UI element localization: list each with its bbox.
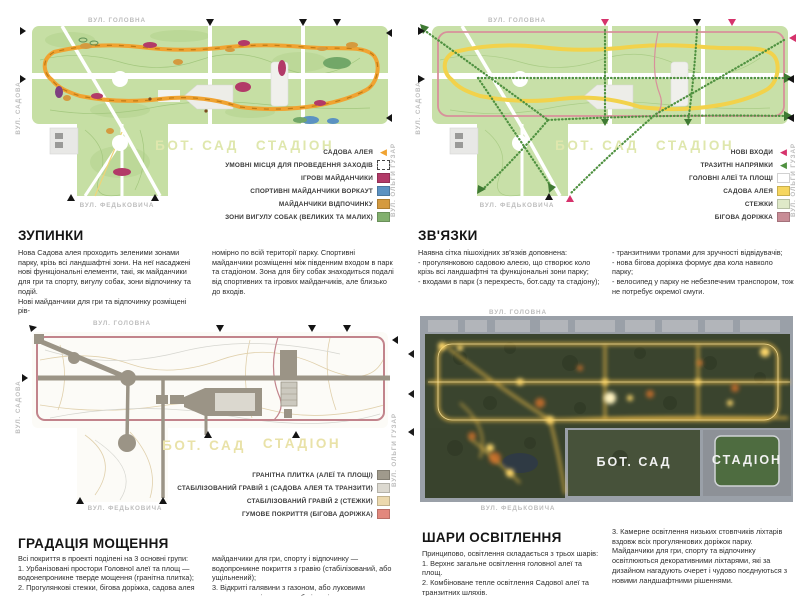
- lighting-title: ШАРИ ОСВІТЛЕННЯ: [422, 530, 562, 545]
- legend-item: ЗОНИ ВИГУЛУ СОБАК (ВЕЛИКИХ ТА МАЛИХ): [225, 212, 390, 222]
- street-label-fedkovycha: ВУЛ. ФЕДЬКОВИЧА: [80, 202, 155, 209]
- gravel1-swatch: [377, 483, 390, 493]
- section-stops: ВУЛ. ГОЛОВНА ВУЛ. САДОВА ВУЛ. ФЕДЬКОВИЧА…: [0, 0, 400, 298]
- paths-swatch: [777, 199, 790, 209]
- links-title: ЗВ'ЯЗКИ: [418, 228, 478, 243]
- bot-sad-label: БОТ. САД: [597, 455, 672, 469]
- granite-tile-swatch: [377, 470, 390, 480]
- paving-legend: ГРАНІТНА ПЛИТКА (АЛЕЇ ТА ПЛОЩІ) СТАБІЛІЗ…: [177, 470, 390, 519]
- lighting-col1: Принципово, освітлення складається з трь…: [422, 549, 602, 596]
- legend-item: ГОЛОВНІ АЛЕЇ ТА ПЛОЩІ: [689, 173, 790, 183]
- main-alleys-swatch: [777, 173, 790, 183]
- garden-alley-arrow-icon: ◀: [377, 147, 390, 157]
- lighting-map: ВУЛ. ГОЛОВНА ВУЛ. ФЕДЬКОВИЧА БОТ. САД СТ…: [400, 308, 800, 518]
- links-text: Наявна сітка пішохідних зв'язків доповне…: [418, 248, 794, 297]
- stops-title: ЗУПИНКИ: [18, 228, 84, 243]
- paving-title: ГРАДАЦІЯ МОЩЕННЯ: [18, 536, 169, 551]
- paving-col2: майданчики для гри, спорту і відпочинку …: [212, 554, 394, 596]
- legend-item: ГУМОВЕ ПОКРИТТЯ (БІГОВА ДОРІЖКА): [242, 509, 390, 519]
- street-label-sadova: ВУЛ. САДОВА: [15, 380, 22, 433]
- section-paving: ВУЛ. ГОЛОВНА ВУЛ. САДОВА ВУЛ. ФЕДЬКОВИЧА…: [0, 298, 400, 596]
- street-label-fedkovycha: ВУЛ. ФЕДЬКОВИЧА: [480, 202, 555, 209]
- legend-item: ІГРОВІ МАЙДАНЧИКИ: [301, 173, 390, 183]
- play-areas-swatch: [377, 173, 390, 183]
- legend-item: СТАБІЛІЗОВАНИЙ ГРАВІЙ 2 (СТЕЖКИ): [247, 496, 390, 506]
- street-label-huzar: ВУЛ. ОЛЬГИ ГУЗАР: [790, 143, 797, 217]
- section-links: ВУЛ. ГОЛОВНА ВУЛ. САДОВА ВУЛ. ФЕДЬКОВИЧА…: [400, 0, 800, 298]
- rest-areas-swatch: [377, 199, 390, 209]
- bot-sad-label: БОТ. САД: [162, 438, 246, 453]
- paving-text: Всі покриття в проекті поділені на 3 осн…: [18, 554, 394, 596]
- poster-canvas: ВУЛ. ГОЛОВНА ВУЛ. САДОВА ВУЛ. ФЕДЬКОВИЧА…: [0, 0, 800, 596]
- bot-sad-label: БОТ. САД: [555, 138, 639, 153]
- running-track-swatch: [777, 212, 790, 222]
- legend-item: СТАБІЛІЗОВАНИЙ ГРАВІЙ 1 (САДОВА АЛЕЯ ТА …: [177, 483, 390, 493]
- links-col2: - транзитними тропами для зручності відв…: [612, 248, 794, 297]
- stops-legend: САДОВА АЛЕЯ◀ УМОВНІ МІСЦЯ ДЛЯ ПРОВЕДЕННЯ…: [225, 147, 390, 222]
- street-label-holovna: ВУЛ. ГОЛОВНА: [489, 309, 547, 316]
- garden-alley-swatch: [777, 186, 790, 196]
- legend-item: ГРАНІТНА ПЛИТКА (АЛЕЇ ТА ПЛОЩІ): [252, 470, 390, 480]
- entrance-markers: [408, 350, 414, 436]
- legend-item: ТРАЗИТНІ НАПРЯМКИ◀: [700, 160, 790, 170]
- street-label-sadova: ВУЛ. САДОВА: [415, 81, 422, 134]
- legend-item: САДОВА АЛЕЯ: [723, 186, 790, 196]
- legend-item: СПОРТИВНІ МАЙДАНЧИКИ ВОРКАУТ: [250, 186, 390, 196]
- street-label-huzar: ВУЛ. ОЛЬГИ ГУЗАР: [390, 143, 397, 217]
- street-label-holovna: ВУЛ. ГОЛОВНА: [488, 17, 546, 24]
- street-label-holovna: ВУЛ. ГОЛОВНА: [88, 17, 146, 24]
- links-col1: Наявна сітка пішохідних зв'язків доповне…: [418, 248, 600, 297]
- rubber-surface-swatch: [377, 509, 390, 519]
- stadion-label: СТАДІОН: [712, 453, 782, 467]
- legend-item: БІГОВА ДОРІЖКА: [715, 212, 790, 222]
- transit-arrow-icon: ◀: [777, 160, 790, 170]
- stadion-label: СТАДІОН: [263, 436, 341, 451]
- street-label-fedkovycha: ВУЛ. ФЕДЬКОВИЧА: [481, 505, 556, 512]
- street-label-fedkovycha: ВУЛ. ФЕДЬКОВИЧА: [88, 505, 163, 512]
- street-label-holovna: ВУЛ. ГОЛОВНА: [93, 320, 151, 327]
- street-label-huzar: ВУЛ. ОЛЬГИ ГУЗАР: [391, 413, 398, 487]
- dog-zones-swatch: [377, 212, 390, 222]
- new-entrance-arrow-icon: ◀: [777, 147, 790, 157]
- event-area-swatch: [377, 160, 390, 170]
- gravel2-swatch: [377, 496, 390, 506]
- legend-item: СТЕЖКИ: [745, 199, 790, 209]
- legend-item: МАЙДАНЧИКИ ВІДПОЧИНКУ: [279, 199, 390, 209]
- section-lighting: ВУЛ. ГОЛОВНА ВУЛ. ФЕДЬКОВИЧА БОТ. САД СТ…: [400, 298, 800, 596]
- legend-item: САДОВА АЛЕЯ◀: [323, 147, 390, 157]
- legend-item: НОВІ ВХОДИ◀: [731, 147, 790, 157]
- street-label-sadova: ВУЛ. САДОВА: [15, 81, 22, 134]
- lighting-col2: 3. Камерне освітлення низьких стовпчиків…: [612, 527, 794, 585]
- legend-item: УМОВНІ МІСЦЯ ДЛЯ ПРОВЕДЕННЯ ЗАХОДІВ: [225, 160, 390, 170]
- links-legend: НОВІ ВХОДИ◀ ТРАЗИТНІ НАПРЯМКИ◀ ГОЛОВНІ А…: [689, 147, 790, 222]
- workout-areas-swatch: [377, 186, 390, 196]
- paving-col1: Всі покриття в проекті поділені на 3 осн…: [18, 554, 200, 596]
